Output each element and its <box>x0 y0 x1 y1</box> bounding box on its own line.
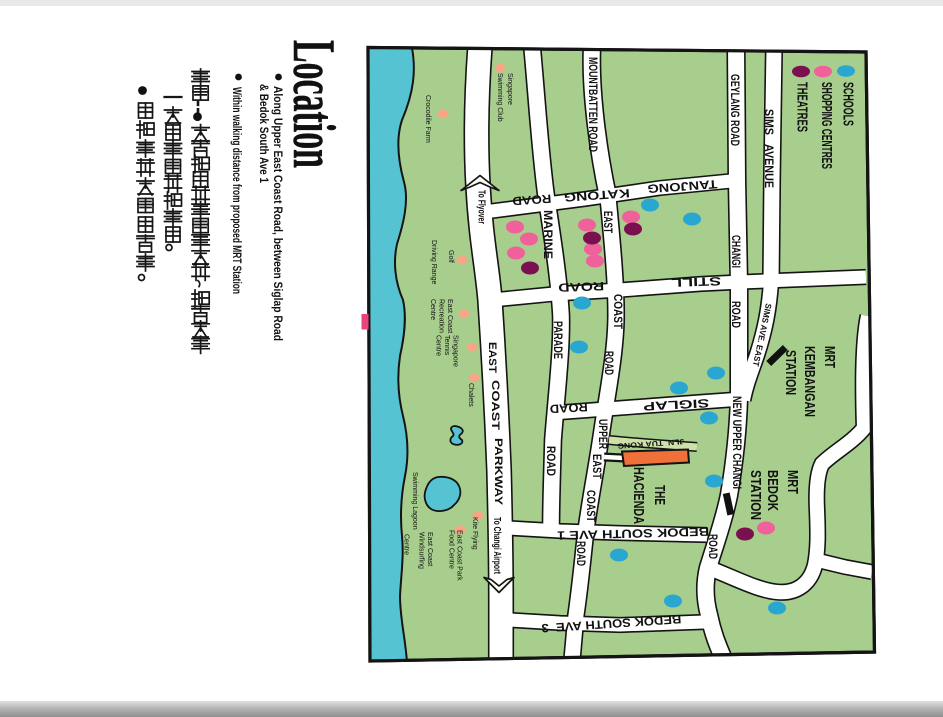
svg-text:EAST: EAST <box>601 211 615 233</box>
svg-text:Recreation: Recreation <box>438 299 445 333</box>
svg-text:THE: THE <box>651 485 667 505</box>
svg-text:MRT: MRT <box>784 470 800 494</box>
svg-text:Centre: Centre <box>403 534 410 555</box>
svg-text:ROAD: ROAD <box>558 279 605 295</box>
svg-text:EAST: EAST <box>590 454 604 480</box>
svg-text:ROAD: ROAD <box>512 192 552 209</box>
svg-text:Swimming Lagoon: Swimming Lagoon <box>411 472 418 530</box>
svg-text:COAST: COAST <box>584 490 598 523</box>
svg-text:SCHOOLS: SCHOOLS <box>840 82 857 126</box>
svg-text:NEW UPPER CHANGI: NEW UPPER CHANGI <box>730 396 744 489</box>
svg-text:GEYLANG ROAD: GEYLANG ROAD <box>728 74 742 146</box>
svg-text:& Bedok South Ave 1: & Bedok South Ave 1 <box>257 84 271 183</box>
svg-text:To Changi Airport: To Changi Airport <box>491 517 502 574</box>
svg-text:Crocodile Farm: Crocodile Farm <box>424 95 431 143</box>
svg-text:COAST: COAST <box>611 294 625 330</box>
svg-text:Singapore: Singapore <box>452 335 459 367</box>
svg-text:SIMS: SIMS <box>762 109 776 135</box>
svg-text:KEMBANGAN: KEMBANGAN <box>801 346 817 417</box>
svg-text:SHOPPING CENTRES: SHOPPING CENTRES <box>818 82 835 169</box>
svg-text:Kite Flying: Kite Flying <box>471 517 478 550</box>
svg-text:COAST: COAST <box>489 380 501 430</box>
svg-text:AVENUE: AVENUE <box>762 144 776 188</box>
svg-text:Golf: Golf <box>447 250 454 263</box>
svg-text:MARINE: MARINE <box>541 210 555 259</box>
svg-text:MRT: MRT <box>821 346 837 368</box>
svg-text:Swimming Club: Swimming Club <box>496 73 503 122</box>
svg-text:To Flyover: To Flyover <box>476 190 487 224</box>
svg-text:Windsurfing: Windsurfing <box>418 532 425 569</box>
svg-text:STATION: STATION <box>747 470 763 520</box>
svg-text:ROAD: ROAD <box>574 541 588 566</box>
svg-text:Location: Location <box>281 40 347 168</box>
svg-text:STILL: STILL <box>671 274 721 290</box>
svg-text:Driving Range: Driving Range <box>430 240 437 284</box>
svg-text:East Coast: East Coast <box>426 532 433 566</box>
svg-text:UPPER: UPPER <box>596 419 610 449</box>
svg-text:Chalets: Chalets <box>467 383 474 407</box>
svg-text:CHANGI: CHANGI <box>729 235 743 268</box>
svg-text:EAST: EAST <box>486 342 498 373</box>
svg-text:ROAD: ROAD <box>549 400 588 416</box>
svg-text:THEATRES: THEATRES <box>794 82 811 132</box>
svg-text:Along Upper East Coast Road, b: Along Upper East Coast Road, between Sig… <box>271 86 285 341</box>
svg-text:ROAD: ROAD <box>729 301 743 328</box>
svg-text:MOUNTBATTEN ROAD: MOUNTBATTEN ROAD <box>586 57 600 152</box>
svg-text:Within walking distance from p: Within walking distance from proposed MR… <box>230 87 244 294</box>
svg-text:PARADE: PARADE <box>551 321 565 359</box>
svg-text:ROAD: ROAD <box>602 351 616 375</box>
svg-text:East Coast Park: East Coast Park <box>456 530 463 581</box>
svg-text:BEDOK: BEDOK <box>764 470 780 511</box>
svg-text:East Coast: East Coast <box>446 299 453 333</box>
svg-text:STATION: STATION <box>782 350 798 395</box>
svg-text:PARKWAY: PARKWAY <box>492 438 504 506</box>
svg-text:Food Centre: Food Centre <box>448 530 455 569</box>
svg-text:Centre: Centre <box>435 335 442 356</box>
svg-text:ROAD: ROAD <box>544 446 558 476</box>
svg-text:HACIENDA: HACIENDA <box>630 467 646 524</box>
svg-text:Tennis: Tennis <box>443 335 450 356</box>
svg-text:Centre: Centre <box>429 299 436 320</box>
svg-text:Singapore: Singapore <box>506 73 513 105</box>
